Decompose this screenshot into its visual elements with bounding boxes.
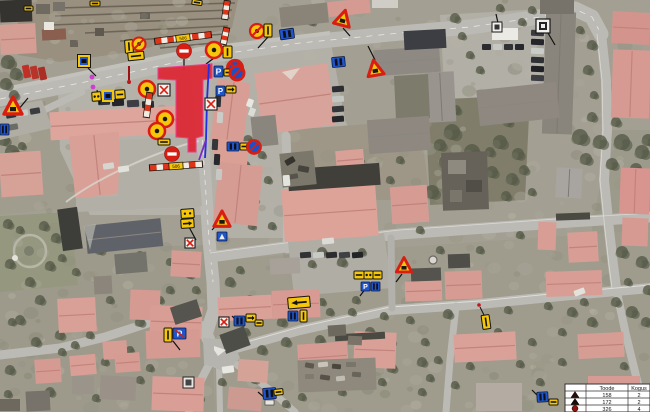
svg-text:P: P: [363, 284, 368, 291]
svg-text:Kogus: Kogus: [631, 386, 647, 392]
svg-text:4: 4: [637, 407, 640, 412]
svg-text:P: P: [216, 67, 222, 77]
svg-text:172: 172: [602, 400, 611, 406]
svg-text:Toode: Toode: [600, 386, 615, 392]
svg-text:326: 326: [602, 407, 611, 412]
svg-text:506: 506: [179, 35, 188, 41]
svg-text:506: 506: [172, 164, 180, 170]
svg-text:P: P: [218, 87, 223, 96]
svg-text:2: 2: [637, 400, 640, 406]
svg-text:2: 2: [637, 393, 640, 399]
svg-text:158: 158: [602, 393, 611, 399]
